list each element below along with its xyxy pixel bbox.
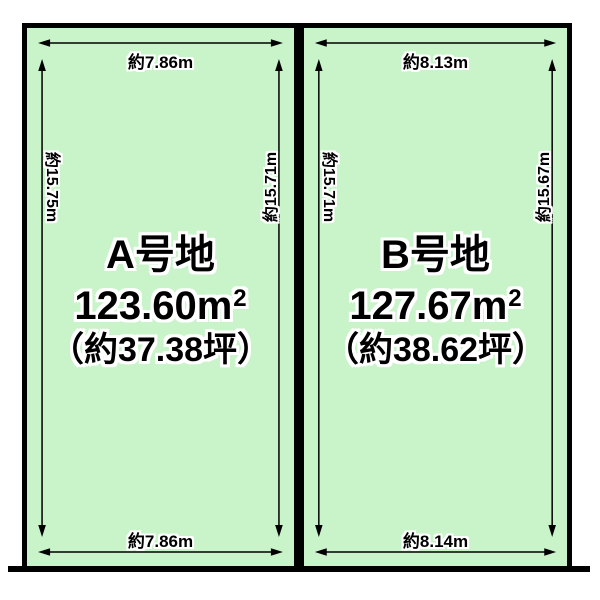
plot-area-label: 123.60m2: [27, 277, 294, 328]
plot-b-dimension-top-label: 約8.13m: [304, 48, 567, 73]
square-meter-superscript: 2: [508, 285, 521, 312]
plot-a-dimension-top-label: 約7.86m: [27, 48, 294, 73]
plot-name-label: A号地: [27, 233, 294, 277]
plot-b: 約8.13m 約8.14m 約15.71m 約15.67m B号地 127.67…: [299, 23, 572, 572]
plot-b-dimension-bottom-label: 約8.14m: [304, 527, 567, 552]
plot-a-center-text: A号地 123.60m2 （約37.38坪）: [27, 233, 294, 372]
plot-tsubo-label: （約37.38坪）: [27, 328, 294, 372]
plot-a: 約7.86m 約7.86m 約15.75m 約15.71m A号地 123.60…: [22, 23, 299, 572]
plot-b-center-text: B号地 127.67m2 （約38.62坪）: [304, 233, 567, 372]
plot-a-dimension-bottom-label: 約7.86m: [27, 527, 294, 552]
land-plot-diagram: 約7.86m 約7.86m 約15.75m 約15.71m A号地 123.60…: [0, 0, 600, 600]
plot-tsubo-label: （約38.62坪）: [304, 328, 567, 372]
road-boundary-line: [8, 566, 590, 572]
plot-area-label: 127.67m2: [304, 277, 567, 328]
square-meter-superscript: 2: [233, 285, 246, 312]
plot-name-label: B号地: [304, 233, 567, 277]
